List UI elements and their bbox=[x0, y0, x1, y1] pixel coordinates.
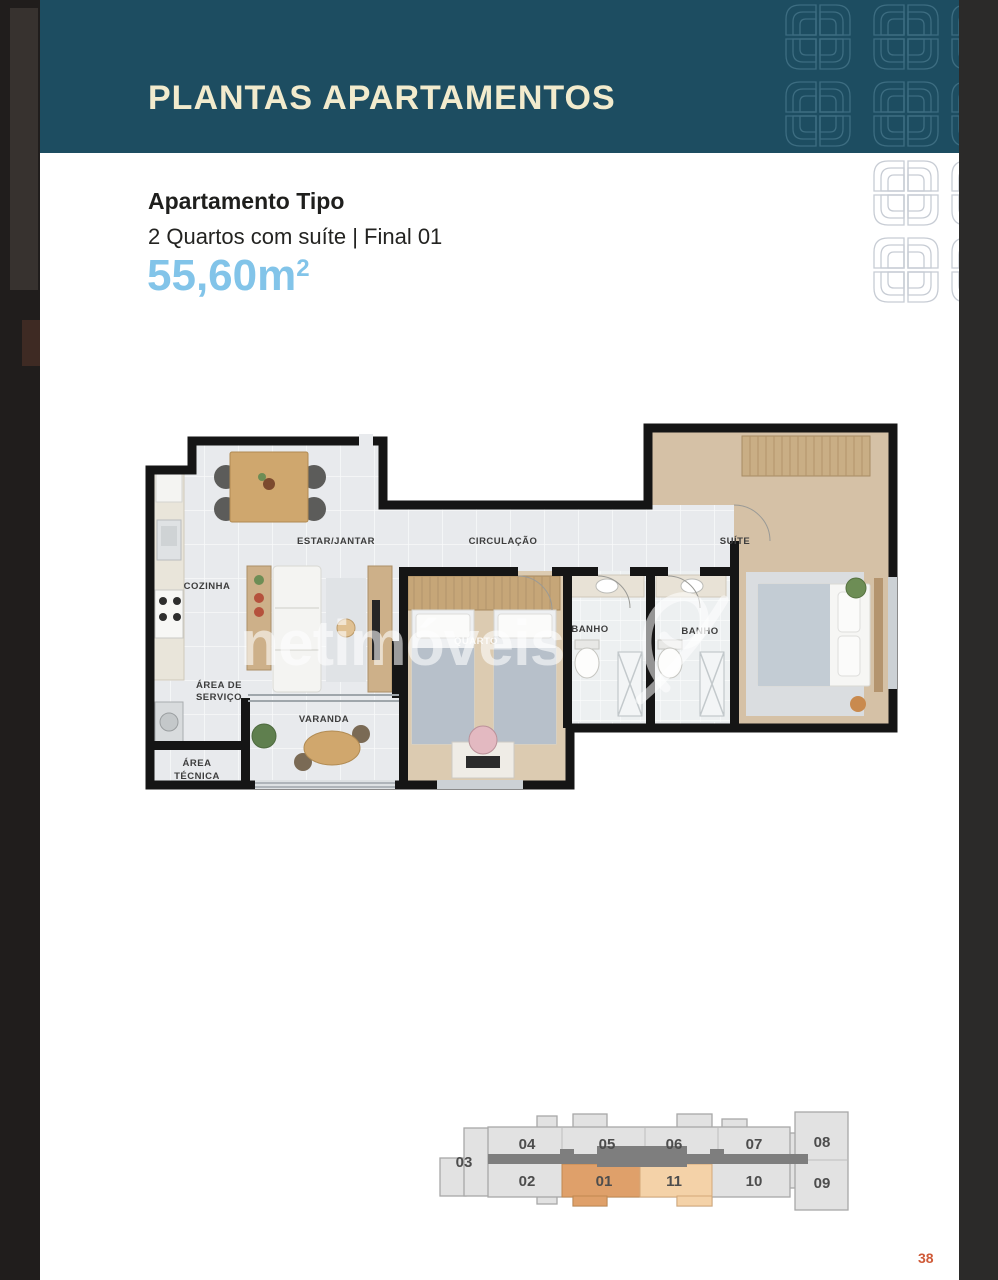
keyplan-unit-08: 08 bbox=[814, 1134, 831, 1151]
room-label-area-tecnica-1: ÁREA bbox=[183, 758, 212, 769]
keyplan-unit-10: 10 bbox=[746, 1173, 763, 1190]
flower-icon bbox=[786, 5, 959, 146]
apartment-description: 2 Quartos com suíte | Final 01 bbox=[148, 224, 442, 250]
page-number: 38 bbox=[918, 1250, 934, 1266]
area-exponent: 2 bbox=[296, 255, 309, 282]
keyplan-unit-01: 01 bbox=[596, 1173, 613, 1190]
room-label-varanda: VARANDA bbox=[299, 714, 349, 725]
apartment-area: 55,60m2 bbox=[147, 254, 310, 298]
room-label-area-servico-1: ÁREA DE bbox=[196, 680, 242, 691]
viewer-right-edge bbox=[959, 0, 998, 1280]
keyplan-unit-09: 09 bbox=[814, 1175, 831, 1192]
building-key-plan: 03 04 05 06 07 08 02 01 11 10 09 bbox=[430, 1100, 870, 1220]
area-value: 55,60m bbox=[147, 251, 296, 300]
room-label-area-tecnica-2: TÉCNICA bbox=[174, 771, 220, 782]
keyplan-unit-04: 04 bbox=[519, 1136, 536, 1153]
room-label-circulacao: CIRCULAÇÃO bbox=[469, 536, 538, 547]
watermark-text: netimóveis bbox=[240, 606, 564, 680]
flower-icon bbox=[874, 161, 959, 302]
keyplan-unit-01-balcony bbox=[573, 1196, 607, 1206]
keyplan-unit-02: 02 bbox=[519, 1173, 536, 1190]
floral-motif-pattern bbox=[780, 0, 959, 320]
netimoveis-logo-icon bbox=[630, 588, 750, 708]
viewer-left-thumbnail-fragment bbox=[22, 320, 40, 366]
keyplan-unit-11: 11 bbox=[666, 1173, 682, 1190]
apartment-type-label: Apartamento Tipo bbox=[148, 188, 344, 215]
room-label-banho-1: BANHO bbox=[571, 624, 608, 635]
room-label-area-servico-2: SERVIÇO bbox=[196, 692, 242, 703]
keyplan-unit-06: 06 bbox=[666, 1136, 683, 1153]
page-title: PLANTAS APARTAMENTOS bbox=[148, 79, 616, 118]
keyplan-unit-03: 03 bbox=[456, 1154, 473, 1171]
keyplan-unit-07: 07 bbox=[746, 1136, 763, 1153]
room-label-estar-jantar: ESTAR/JANTAR bbox=[297, 536, 375, 547]
viewer-left-panel bbox=[10, 8, 38, 290]
room-label-cozinha: COZINHA bbox=[184, 581, 231, 592]
page: { "header": { "title": "PLANTAS APARTAME… bbox=[0, 0, 998, 1280]
room-label-suite: SUÍTE bbox=[720, 536, 750, 547]
keyplan-unit-11-balcony bbox=[677, 1196, 712, 1206]
keyplan-unit-05: 05 bbox=[599, 1136, 616, 1153]
kitchen-counter bbox=[154, 468, 184, 744]
